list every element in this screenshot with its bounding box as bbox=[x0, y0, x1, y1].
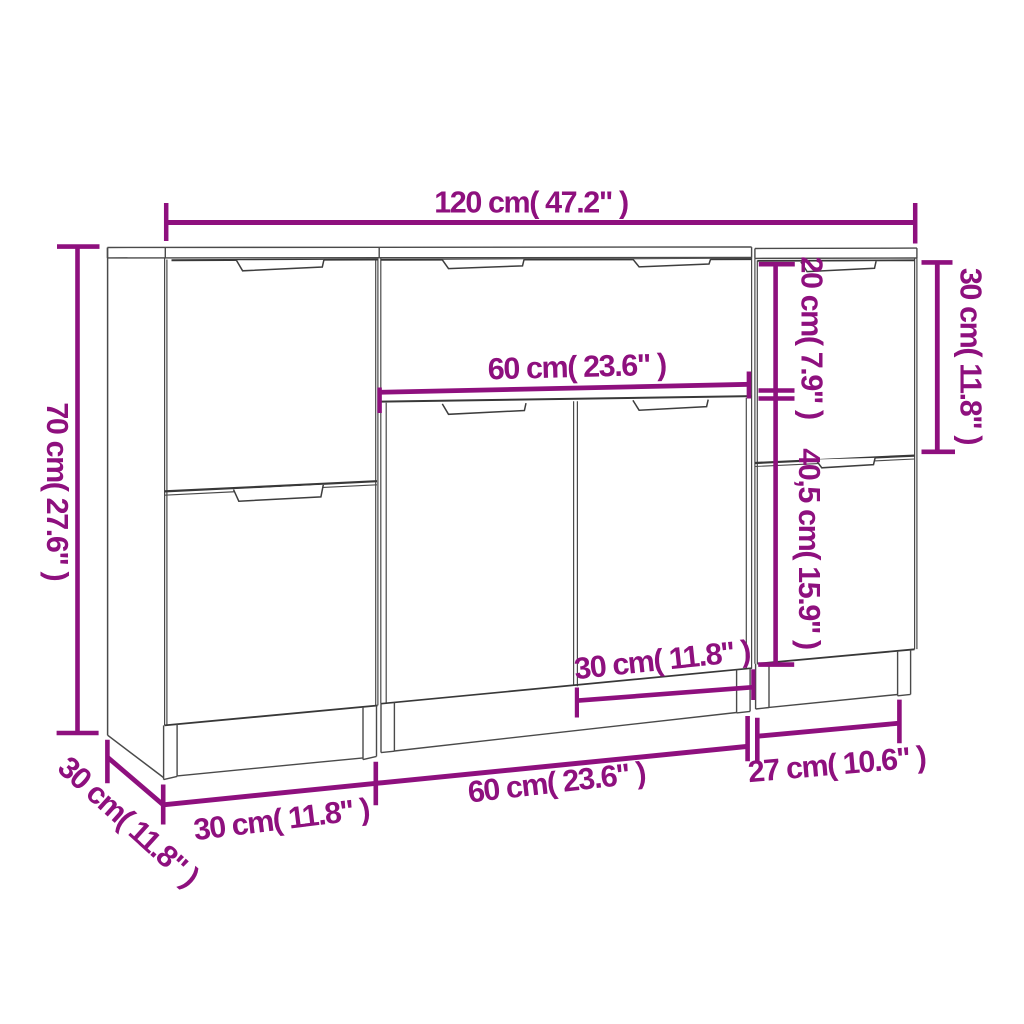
svg-text:20 cm( 7.9" ): 20 cm( 7.9" ) bbox=[795, 256, 829, 419]
svg-text:60 cm( 23.6" ): 60 cm( 23.6" ) bbox=[487, 348, 666, 387]
svg-text:30 cm( 11.8" ): 30 cm( 11.8" ) bbox=[954, 268, 988, 445]
svg-text:120 cm( 47.2" ): 120 cm( 47.2" ) bbox=[434, 186, 628, 220]
svg-text:70 cm( 27.6" ): 70 cm( 27.6" ) bbox=[40, 402, 74, 580]
svg-text:40,5 cm( 15.9" ): 40,5 cm( 15.9" ) bbox=[792, 448, 826, 649]
